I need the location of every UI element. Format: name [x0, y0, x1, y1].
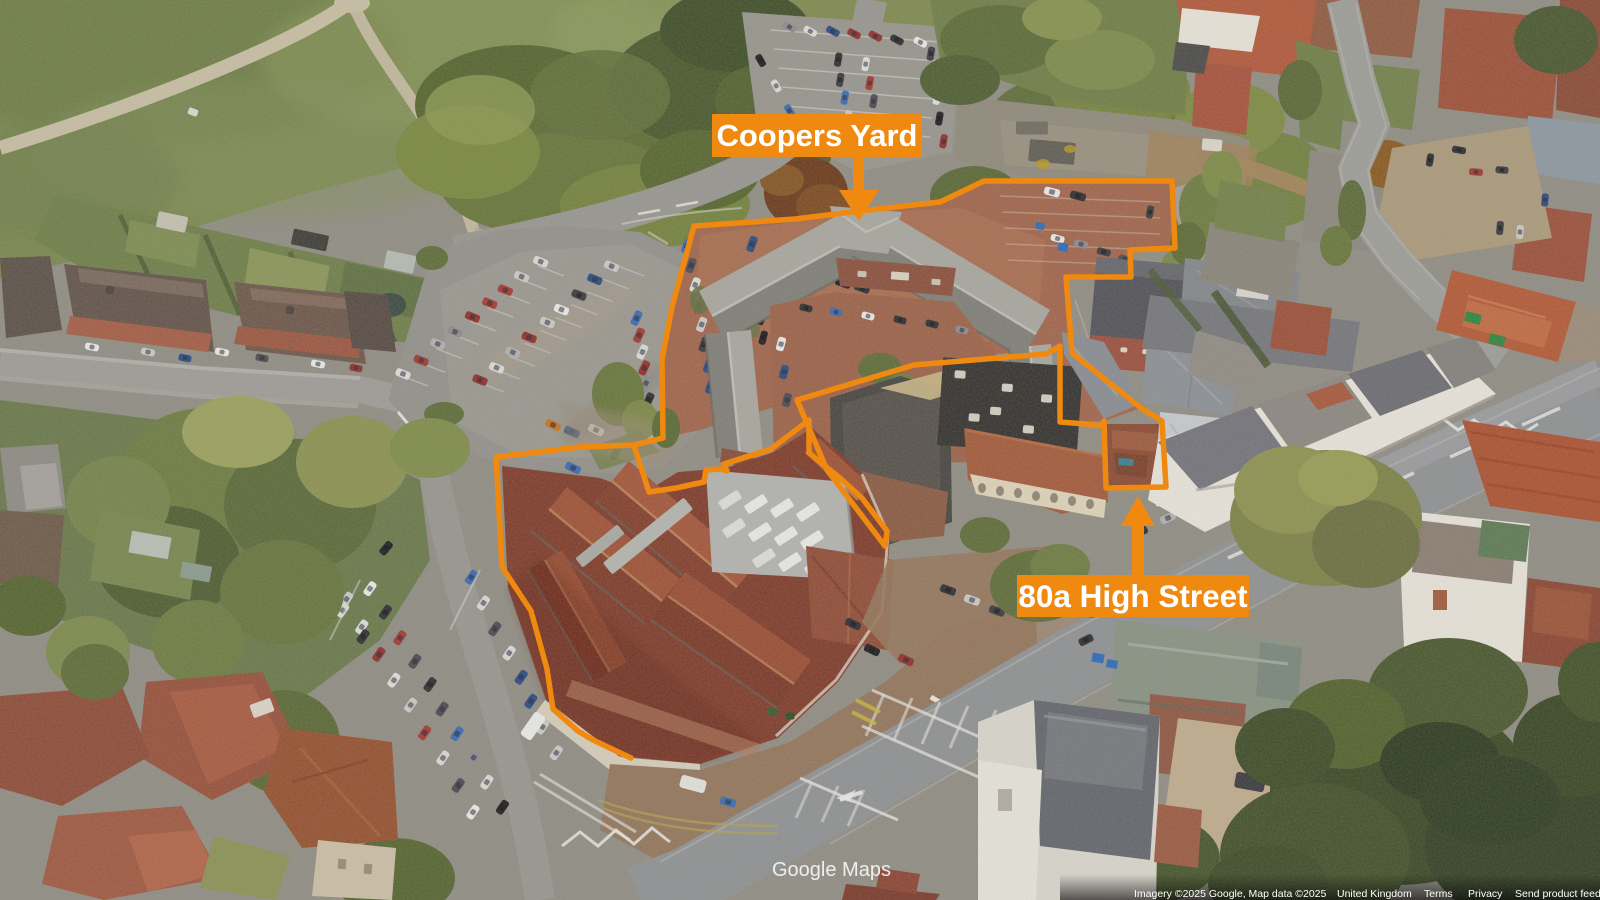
svg-text:Privacy: Privacy: [1468, 888, 1503, 900]
svg-text:Imagery ©2025 Google, Map data: Imagery ©2025 Google, Map data ©2025: [1134, 888, 1327, 900]
svg-text:80a High Street: 80a High Street: [1018, 578, 1248, 614]
svg-text:Terms: Terms: [1424, 888, 1453, 900]
svg-text:Send product feedb: Send product feedb: [1515, 888, 1600, 900]
svg-text:Google Maps: Google Maps: [772, 859, 891, 881]
svg-text:United Kingdom: United Kingdom: [1337, 888, 1412, 900]
svg-text:Coopers Yard: Coopers Yard: [716, 118, 917, 153]
